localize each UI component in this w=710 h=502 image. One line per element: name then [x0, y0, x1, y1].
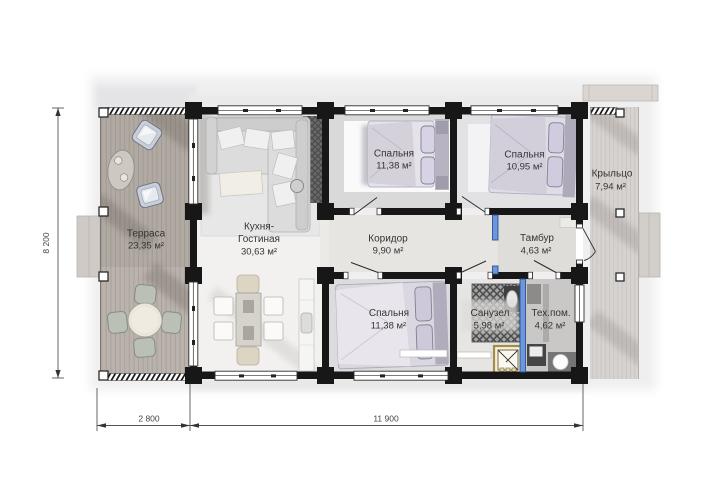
svg-text:11,38 м²: 11,38 м² — [376, 161, 411, 172]
svg-text:Спальня: Спальня — [504, 150, 544, 161]
svg-text:11 900: 11 900 — [373, 414, 399, 424]
svg-text:11,38 м²: 11,38 м² — [371, 321, 406, 332]
svg-text:9,90 м²: 9,90 м² — [373, 246, 404, 257]
svg-text:30,63 м²: 30,63 м² — [241, 247, 277, 258]
svg-text:5,98 м²: 5,98 м² — [474, 321, 505, 332]
svg-text:2 800: 2 800 — [138, 414, 160, 424]
svg-text:23,35 м²: 23,35 м² — [128, 241, 164, 252]
svg-text:Терраса: Терраса — [127, 229, 166, 240]
svg-text:Тамбур: Тамбур — [520, 232, 554, 244]
svg-text:10,95 м²: 10,95 м² — [506, 162, 542, 173]
svg-text:8 200: 8 200 — [41, 232, 51, 254]
svg-text:Крыльцо: Крыльцо — [592, 169, 633, 180]
svg-text:4,63 м²: 4,63 м² — [521, 246, 552, 257]
svg-text:Тех.пом.: Тех.пом. — [531, 308, 570, 319]
svg-text:Санузел: Санузел — [471, 308, 510, 319]
svg-text:Спальня: Спальня — [369, 308, 409, 319]
svg-text:Спальня: Спальня — [374, 149, 414, 160]
svg-text:Гостиная: Гостиная — [238, 234, 280, 245]
svg-text:7,94 м²: 7,94 м² — [595, 182, 626, 193]
svg-text:4,62 м²: 4,62 м² — [535, 321, 566, 332]
svg-text:Кухня-: Кухня- — [244, 222, 274, 233]
svg-text:Коридор: Коридор — [368, 234, 408, 245]
